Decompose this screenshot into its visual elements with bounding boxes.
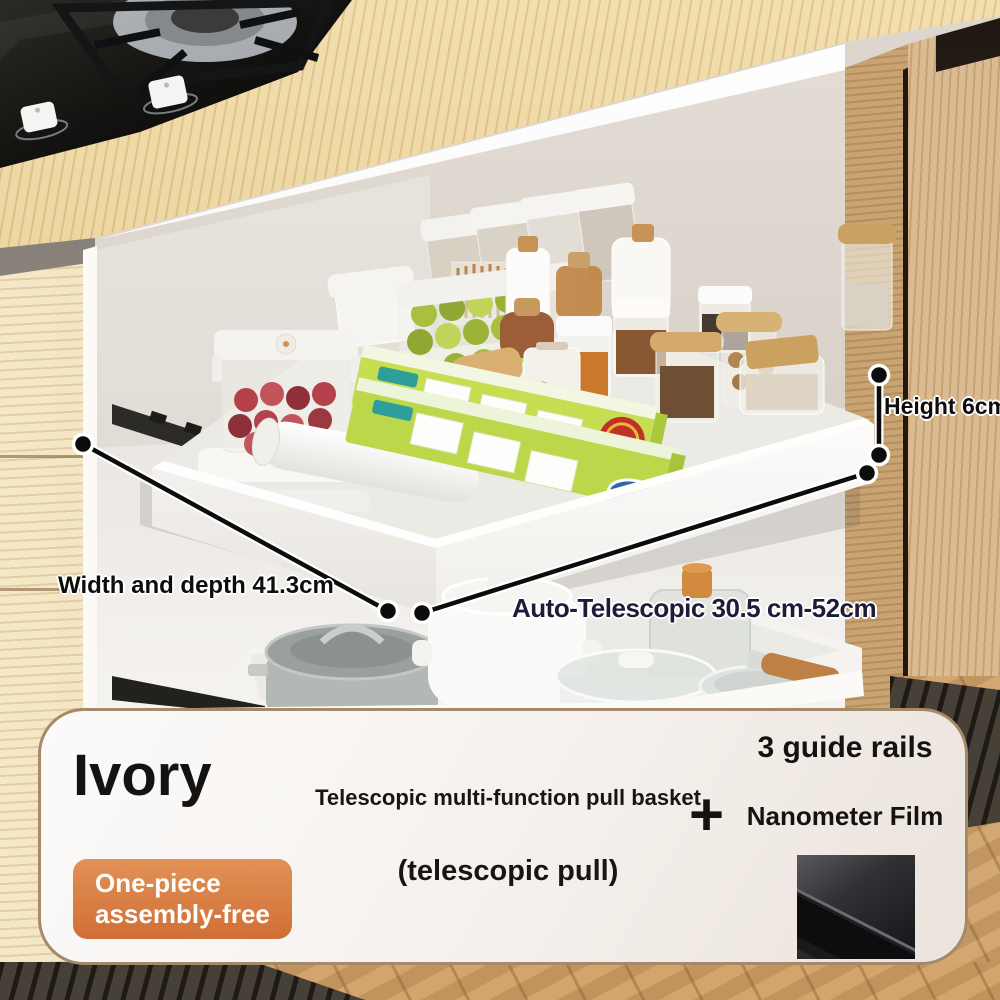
feature-guide-rails: 3 guide rails bbox=[739, 731, 951, 765]
info-panel: Ivory One-piece assembly-free Telescopic… bbox=[38, 708, 968, 965]
feature-nanometer-film: Nanometer Film bbox=[739, 801, 951, 832]
color-name: Ivory bbox=[73, 747, 212, 805]
telescopic-range-label: Auto-Telescopic 30.5 cm-52cm bbox=[512, 593, 876, 624]
product-image: flo bbox=[0, 0, 1000, 1000]
product-title: Telescopic multi-function pull basket bbox=[278, 785, 738, 811]
badge-line1: One-piece bbox=[95, 868, 270, 899]
plus-sign: + bbox=[689, 785, 724, 845]
width-depth-label: Width and depth 41.3cm bbox=[58, 572, 334, 600]
rail-photo bbox=[797, 855, 915, 959]
badge-line2: assembly-free bbox=[95, 899, 270, 930]
assembly-badge: One-piece assembly-free bbox=[73, 859, 292, 939]
product-subtitle: (telescopic pull) bbox=[278, 855, 738, 888]
drawer-seam bbox=[0, 455, 95, 458]
height-label: Height 6cm bbox=[884, 393, 1000, 420]
